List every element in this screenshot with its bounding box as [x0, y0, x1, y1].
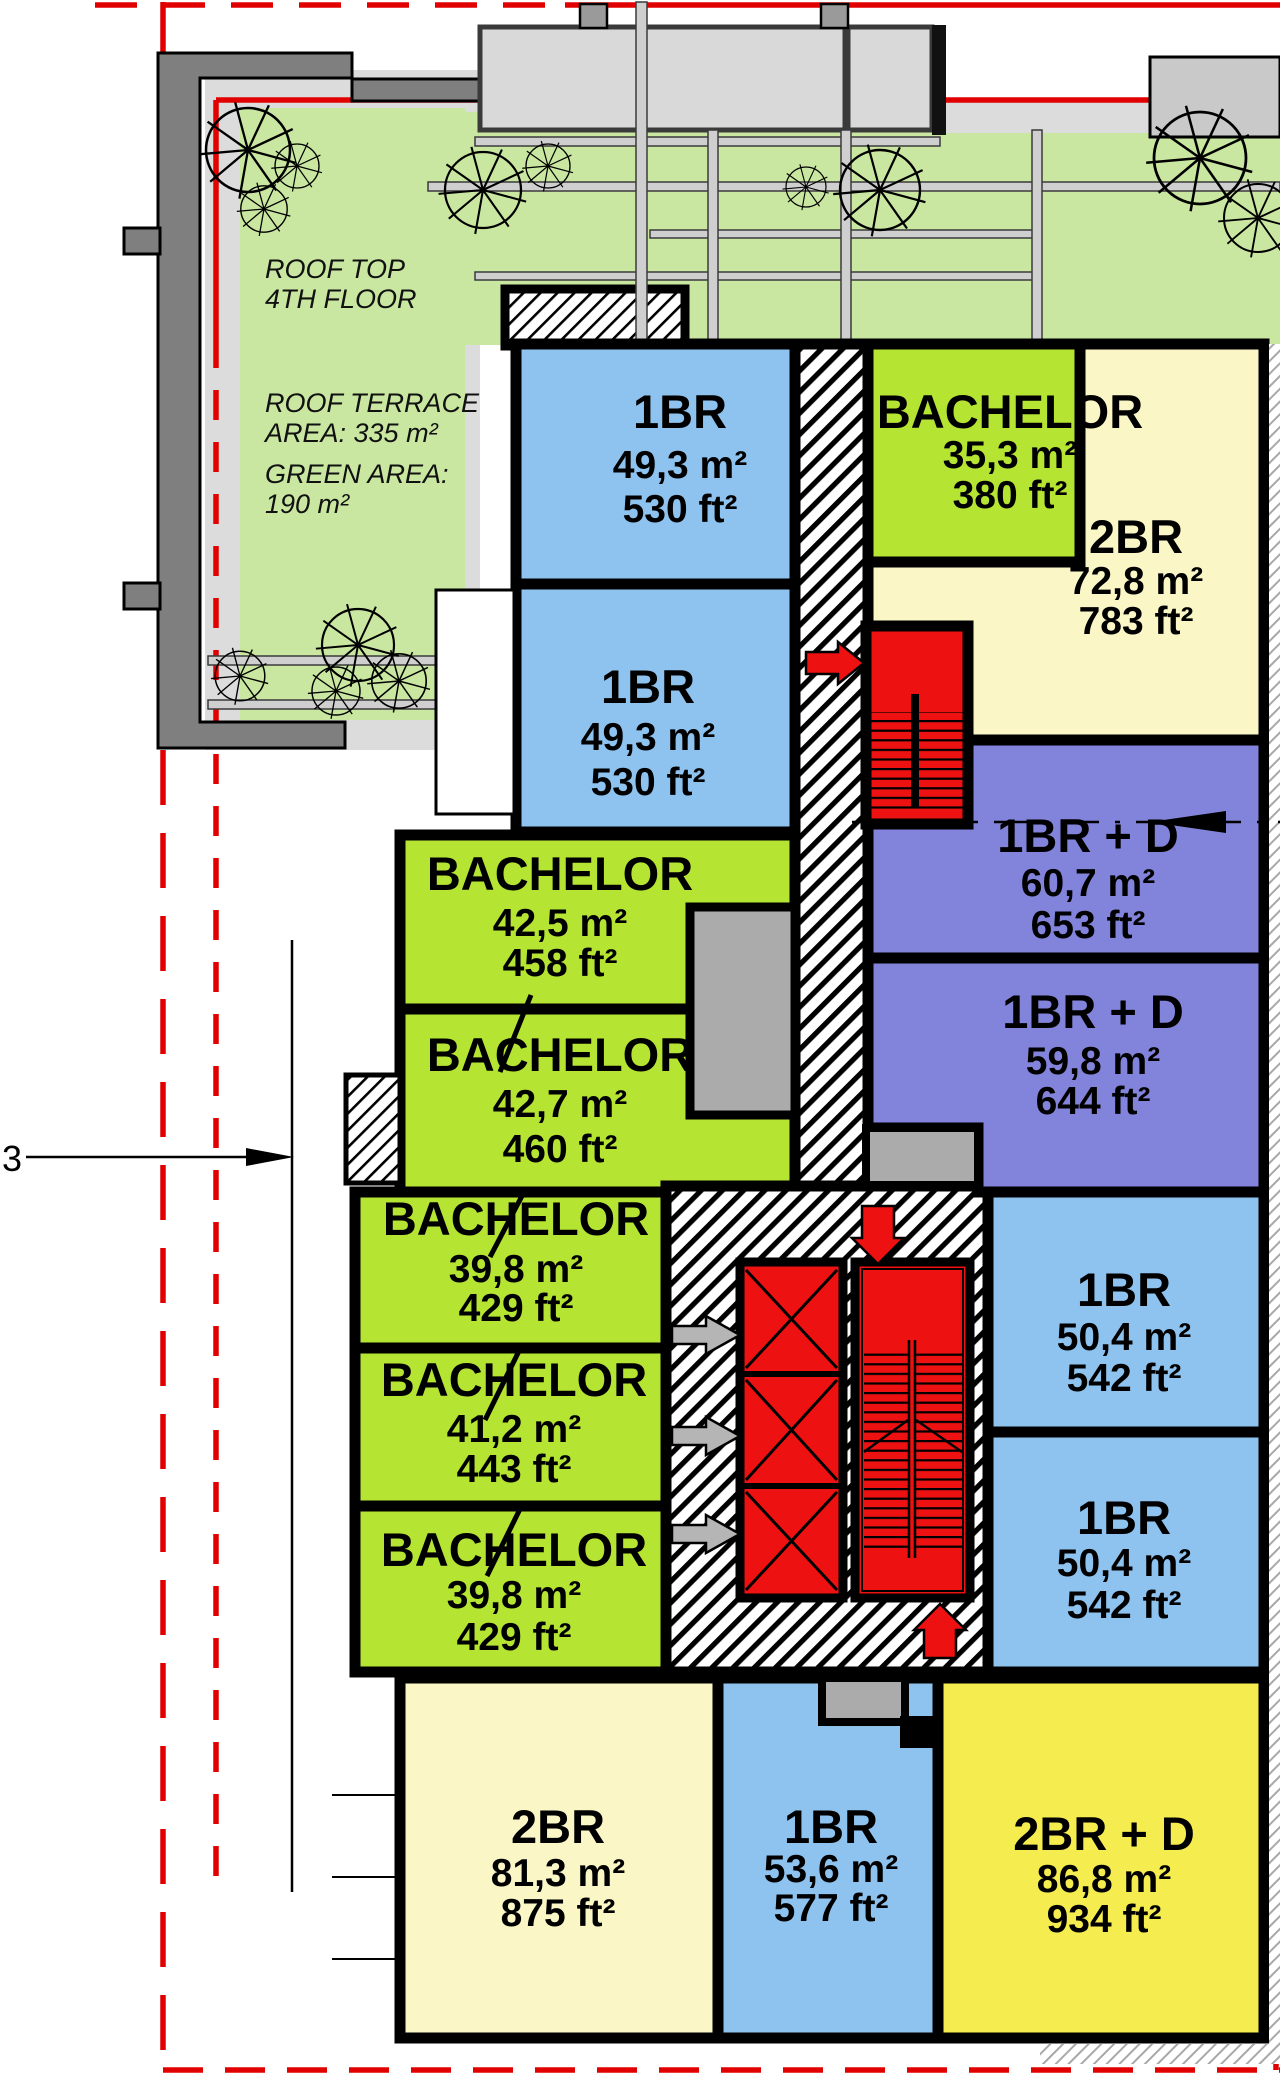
unit-area: 53,6 m²: [764, 1848, 898, 1891]
floor-plan: 3 ROOF TOP 4TH FLOOR ROOF TERRACE AREA: …: [0, 0, 1280, 2100]
unit-area: 644 ft²: [1036, 1080, 1151, 1123]
unit-area: 443 ft²: [457, 1448, 572, 1491]
shaft: [866, 1128, 978, 1185]
green-area-label: GREEN AREA:: [265, 459, 449, 489]
unit-label: BACHELOR: [383, 1192, 649, 1245]
balcony-hatch-left: [346, 1075, 400, 1183]
unit-label: 1BR: [601, 660, 695, 713]
shaft: [822, 1678, 905, 1722]
section-arrowhead-icon: [246, 1148, 294, 1166]
unit-area: 380 ft²: [953, 474, 1068, 517]
unit-area: 72,8 m²: [1069, 560, 1203, 603]
unit-label: 1BR: [1077, 1263, 1171, 1316]
stairs-icon: [866, 626, 968, 824]
unit-area: 49,3 m²: [581, 716, 715, 759]
unit-area: 542 ft²: [1067, 1357, 1182, 1400]
unit-label: 2BR + D: [1013, 1807, 1195, 1860]
roof-terrace-label: AREA: 335 m²: [263, 418, 439, 448]
unit-area: 653 ft²: [1031, 904, 1146, 947]
unit-area: 35,3 m²: [943, 434, 1077, 477]
unit-label: 1BR + D: [997, 809, 1179, 862]
unit-area: 39,8 m²: [449, 1248, 583, 1291]
unit-area: 577 ft²: [774, 1887, 889, 1930]
unit-area: 542 ft²: [1067, 1584, 1182, 1627]
unit-area: 60,7 m²: [1021, 862, 1155, 905]
unit-area: 59,8 m²: [1026, 1040, 1160, 1083]
pergola-post: [636, 2, 647, 345]
roof-top-label: ROOF TOP: [265, 254, 405, 284]
unit-area: 934 ft²: [1047, 1898, 1162, 1941]
unit-area: 460 ft²: [503, 1128, 618, 1171]
unit-area: 50,4 m²: [1057, 1316, 1191, 1359]
unit-area: 49,3 m²: [613, 444, 747, 487]
edge-hatch-bottom: [1040, 2044, 1280, 2064]
balcony-left: [436, 590, 514, 814]
unit-label: BACHELOR: [381, 1523, 647, 1576]
unit-area: 41,2 m²: [447, 1408, 581, 1451]
unit-label: BACHELOR: [427, 847, 693, 900]
unit-label: 1BR: [784, 1800, 878, 1853]
unit-area: 530 ft²: [623, 488, 738, 531]
green-area-label: 190 m²: [265, 489, 350, 519]
unit-label: 1BR: [633, 385, 727, 438]
unit-area: 429 ft²: [457, 1616, 572, 1659]
unit-area: 50,4 m²: [1057, 1542, 1191, 1585]
corridor-hatch: [795, 344, 868, 1192]
unit-area: 429 ft²: [459, 1287, 574, 1330]
elevator-icon: [740, 1262, 843, 1598]
unit-label: 2BR: [1089, 510, 1183, 563]
unit-area: 783 ft²: [1079, 600, 1194, 643]
unit-area: 42,5 m²: [493, 902, 627, 945]
section-label: 3: [2, 1138, 22, 1179]
unit-area: 39,8 m²: [447, 1574, 581, 1617]
unit-area: 530 ft²: [591, 761, 706, 804]
unit-label: 2BR: [511, 1800, 605, 1853]
wall-notch: [900, 1716, 943, 1748]
unit-area: 86,8 m²: [1037, 1858, 1171, 1901]
unit-area: 42,7 m²: [493, 1083, 627, 1126]
roof-terrace-label: ROOF TERRACE: [265, 388, 480, 418]
edge-hatch-right: [1269, 344, 1280, 2044]
unit-label: BACHELOR: [877, 385, 1143, 438]
unit-area: 875 ft²: [501, 1892, 616, 1935]
unit-label: BACHELOR: [427, 1028, 693, 1081]
unit-area: 458 ft²: [503, 942, 618, 985]
unit-label: 1BR: [1077, 1491, 1171, 1544]
unit-label: 1BR + D: [1002, 985, 1184, 1038]
balcony-hatch-top: [505, 289, 685, 346]
section-marker-left: 3: [2, 1138, 294, 1179]
roof-top-label: 4TH FLOOR: [265, 284, 417, 314]
shaft: [690, 907, 795, 1115]
stairs-icon: [855, 1262, 970, 1598]
unit-area: 81,3 m²: [491, 1852, 625, 1895]
